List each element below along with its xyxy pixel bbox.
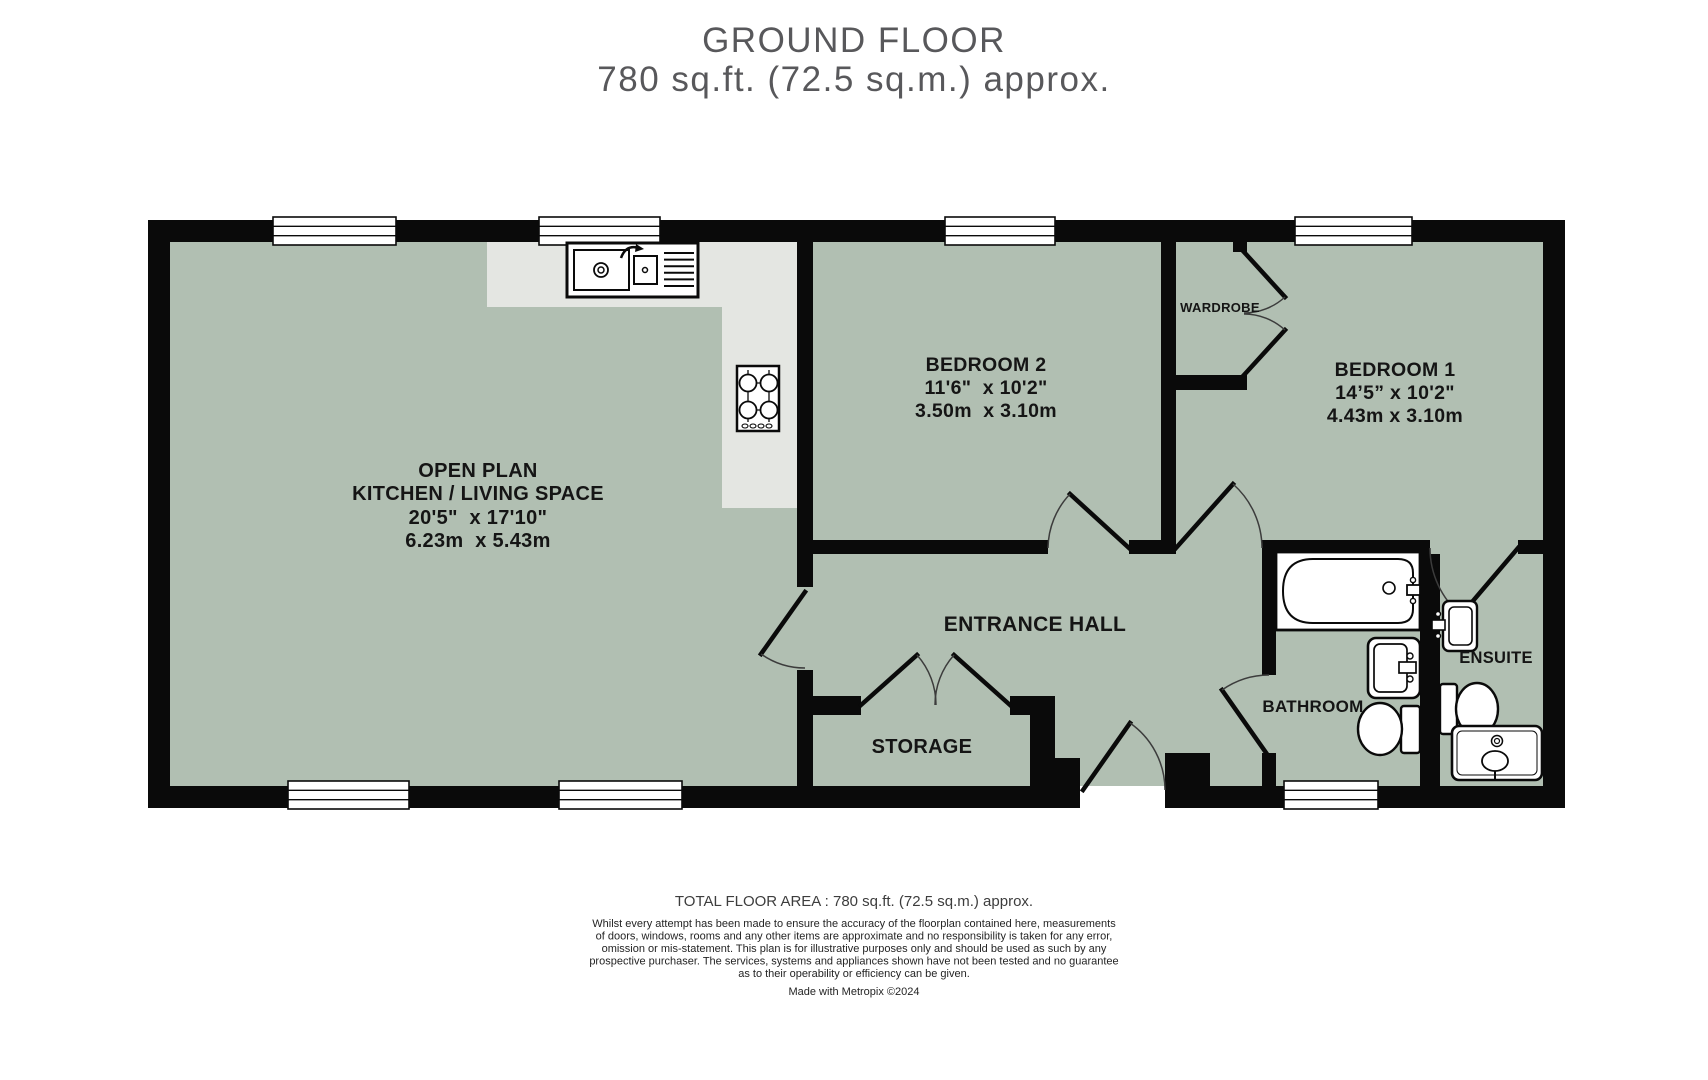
disclaimer-line: prospective purchaser. The services, sys… (589, 956, 1118, 968)
footer: TOTAL FLOOR AREA : 780 sq.ft. (72.5 sq.m… (589, 893, 1118, 998)
window (1295, 217, 1412, 245)
window (945, 217, 1055, 245)
label-bedroom1-dims-ft: 14’5” x 10'2" (1335, 382, 1455, 404)
floorplan-page: GROUND FLOOR 780 sq.ft. (72.5 sq.m.) app… (0, 0, 1708, 1080)
kitchen-sink (567, 243, 698, 297)
shower-tray (1452, 726, 1542, 780)
total-floor-area: TOTAL FLOOR AREA : 780 sq.ft. (72.5 sq.m… (675, 893, 1033, 910)
label-bedroom1: BEDROOM 1 (1335, 359, 1456, 381)
window (539, 217, 660, 245)
label-open-plan-dims-m: 6.23m x 5.43m (405, 530, 550, 552)
label-bedroom1-dims-m: 4.43m x 3.10m (1327, 405, 1463, 427)
window (273, 217, 396, 245)
label-open-plan-dims-ft: 20'5" x 17'10" (409, 507, 548, 529)
credit: Made with Metropix ©2024 (788, 986, 919, 998)
disclaimer-line: as to their operability or efficiency ca… (738, 968, 970, 980)
label-bedroom2-dims-m: 3.50m x 3.10m (915, 400, 1057, 422)
label-ensuite: ENSUITE (1459, 649, 1533, 667)
page-title: GROUND FLOOR (702, 21, 1006, 60)
label-open-plan-2: KITCHEN / LIVING SPACE (352, 483, 604, 505)
label-wardrobe: WARDROBE (1180, 300, 1260, 315)
disclaimer-line: Whilst every attempt has been made to en… (592, 918, 1116, 930)
label-open-plan-1: OPEN PLAN (418, 460, 537, 482)
label-bathroom: BATHROOM (1262, 697, 1363, 716)
label-storage: STORAGE (872, 736, 973, 758)
hob (737, 366, 779, 431)
label-entrance-hall: ENTRANCE HALL (944, 613, 1126, 636)
disclaimer-line: omission or mis-statement. This plan is … (602, 943, 1107, 955)
bathroom-toilet (1358, 703, 1420, 755)
page-subtitle: 780 sq.ft. (72.5 sq.m.) approx. (597, 60, 1110, 99)
disclaimer-line: of doors, windows, rooms and any other i… (596, 931, 1113, 943)
window (288, 781, 409, 809)
label-bedroom2: BEDROOM 2 (926, 354, 1047, 376)
header: GROUND FLOOR 780 sq.ft. (72.5 sq.m.) app… (597, 21, 1110, 99)
bathtub (1276, 552, 1420, 630)
window (1284, 781, 1378, 809)
floor-plan: GROUND FLOOR 780 sq.ft. (72.5 sq.m.) app… (0, 0, 1708, 1080)
label-bedroom2-dims-ft: 11'6" x 10'2" (924, 377, 1047, 399)
window (559, 781, 682, 809)
bathroom-washbasin (1368, 638, 1420, 698)
